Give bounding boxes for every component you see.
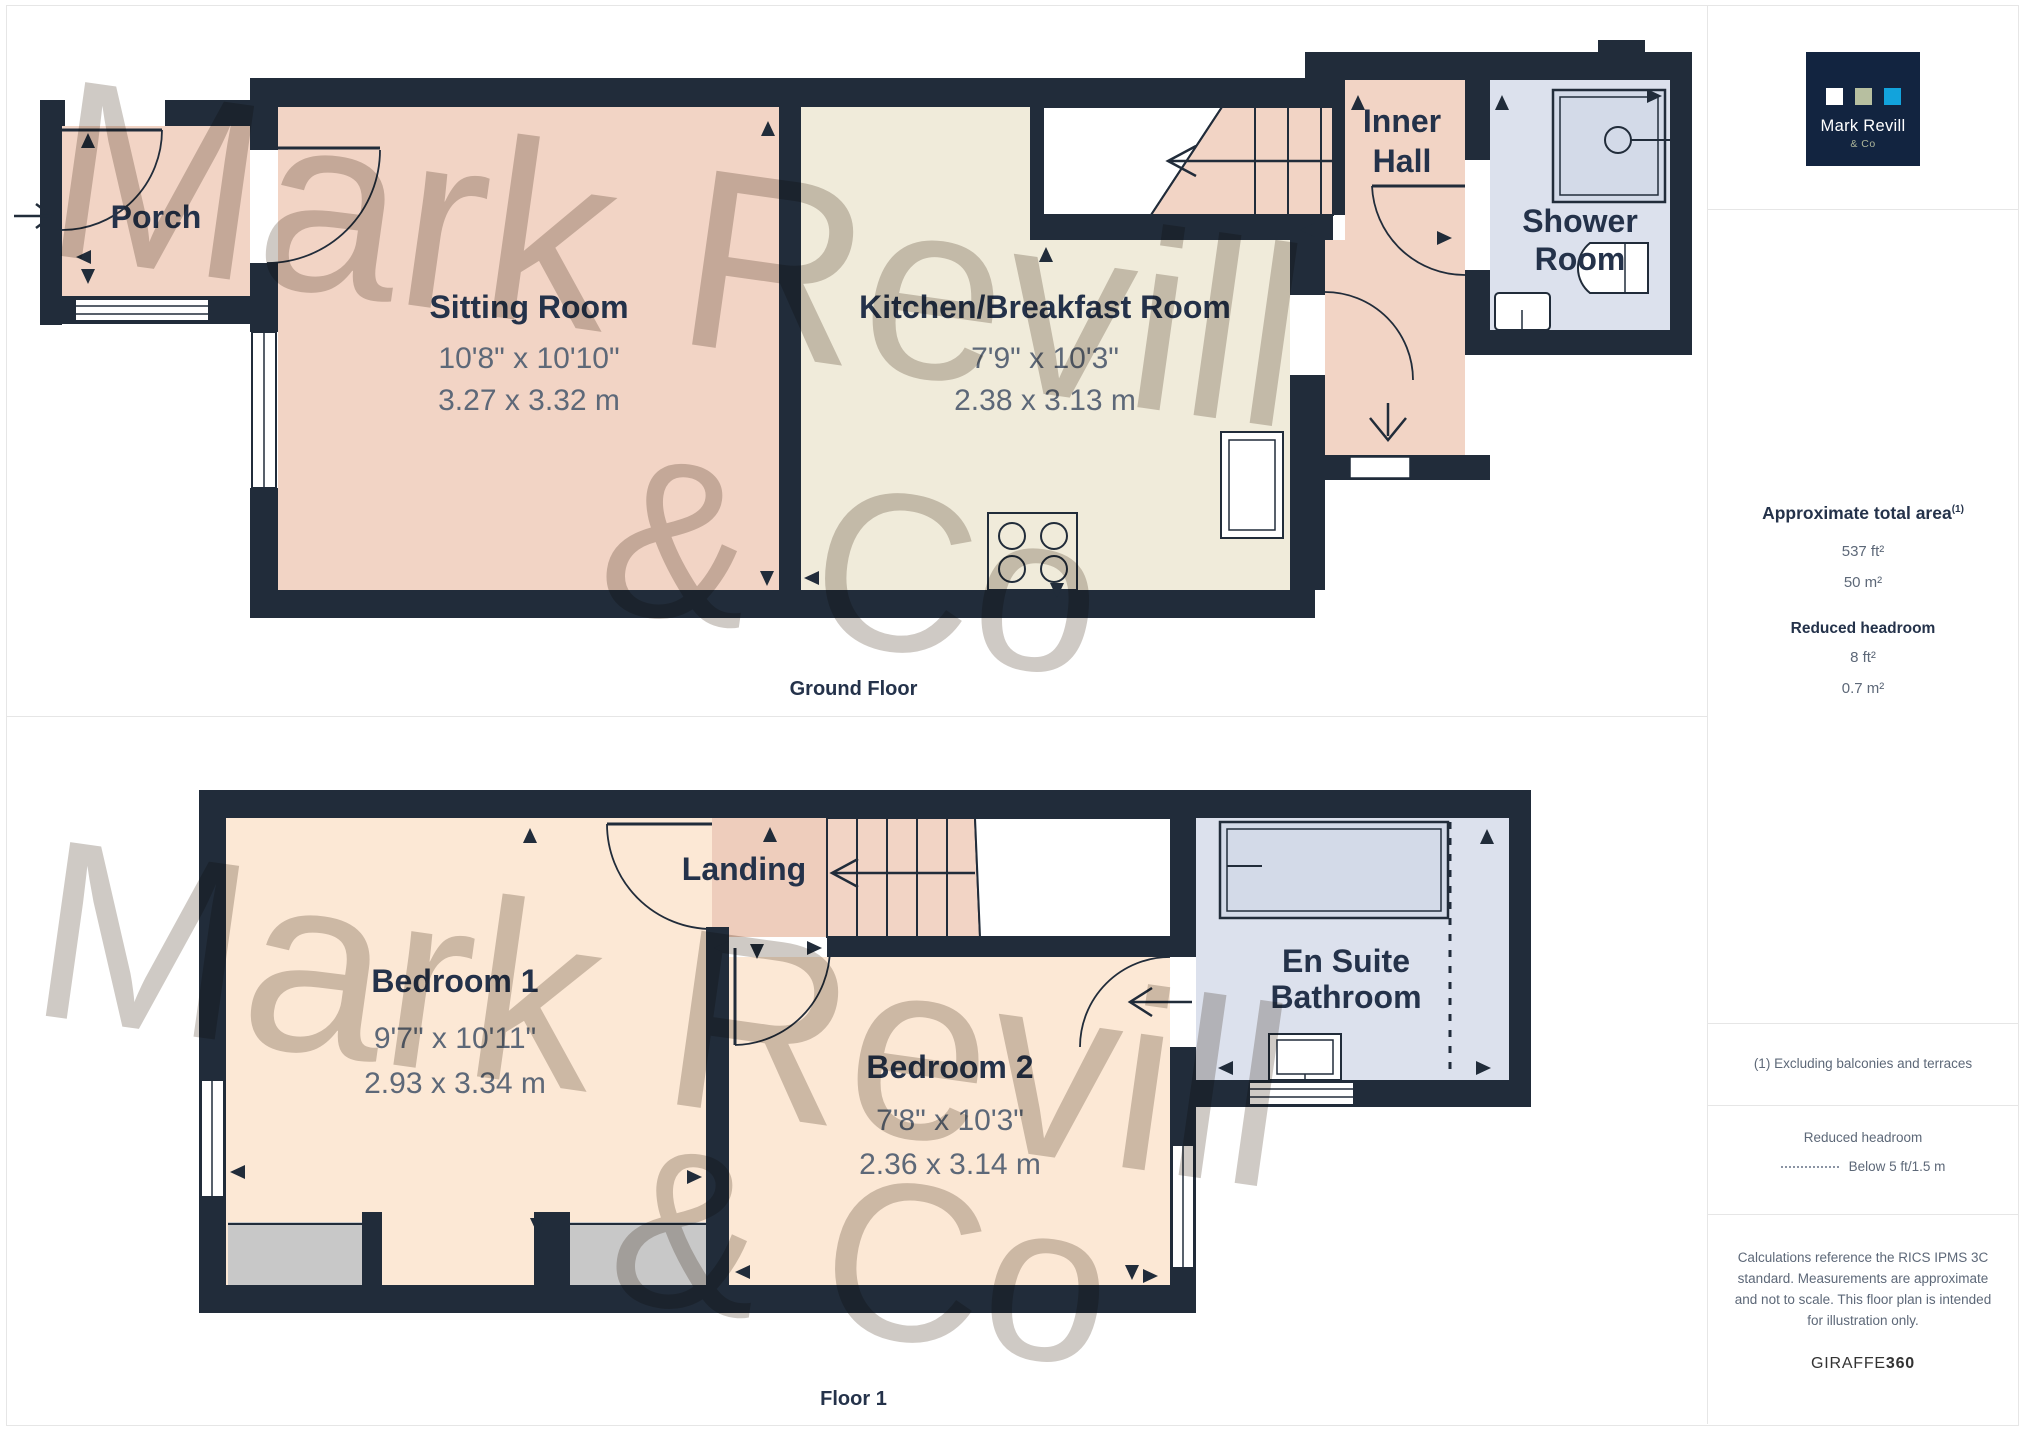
toilet-floor1-icon bbox=[1269, 1034, 1341, 1080]
plans-divider bbox=[7, 716, 1707, 717]
legend-title: Reduced headroom bbox=[1707, 1130, 2019, 1145]
ground-floor-caption: Ground Floor bbox=[0, 678, 1707, 701]
giraffe360-credit: GIRAFFE360 bbox=[1707, 1355, 2019, 1373]
area-value-m: 50 m² bbox=[1707, 567, 2019, 598]
logo-square-white-icon bbox=[1826, 88, 1843, 105]
reduced-headroom-title: Reduced headroom bbox=[1707, 620, 2019, 638]
reduced-value-ft: 8 ft² bbox=[1707, 642, 2019, 673]
agency-logo: Mark Revill & Co bbox=[1806, 52, 1920, 166]
area-value-ft: 537 ft² bbox=[1707, 536, 2019, 567]
credit-brand: GIRAFFE bbox=[1811, 1355, 1886, 1372]
area-summary: Approximate total area(1) 537 ft² 50 m² … bbox=[1707, 503, 2019, 704]
window-ensuite bbox=[1249, 1082, 1354, 1105]
dim-bedroom1-metric: 2.93 x 3.34 m bbox=[364, 1067, 546, 1100]
disclaimer-text: Calculations reference the RICS IPMS 3C … bbox=[1732, 1247, 1994, 1331]
dim-bedroom1-imperial: 9'7" x 10'11" bbox=[374, 1022, 536, 1055]
window-bedroom2 bbox=[1172, 1145, 1194, 1268]
disclaimer-section: Calculations reference the RICS IPMS 3C … bbox=[1707, 1247, 2019, 1373]
legend: Reduced headroom Below 5 ft/1.5 m bbox=[1707, 1130, 2019, 1174]
label-bedroom1: Bedroom 1 bbox=[371, 963, 538, 999]
sidebar-section-line-3 bbox=[1707, 1105, 2018, 1106]
credit-suffix: 360 bbox=[1886, 1355, 1915, 1372]
window-bedroom1 bbox=[201, 1080, 224, 1197]
alcove-left bbox=[228, 1222, 362, 1285]
logo-square-sage-icon bbox=[1855, 88, 1872, 105]
footnote: (1) Excluding balconies and terraces bbox=[1707, 1056, 2019, 1071]
dim-bedroom2-metric: 2.36 x 3.14 m bbox=[859, 1148, 1041, 1181]
alcove-right bbox=[570, 1222, 706, 1285]
bathtub-icon bbox=[1220, 822, 1448, 918]
area-title: Approximate total area(1) bbox=[1707, 503, 2019, 524]
dotted-line-icon bbox=[1781, 1166, 1839, 1168]
floor1-caption: Floor 1 bbox=[0, 1388, 1707, 1411]
label-bedroom2: Bedroom 2 bbox=[866, 1049, 1033, 1085]
sidebar-section-line-4 bbox=[1707, 1214, 2018, 1215]
area-title-superscript: (1) bbox=[1952, 504, 1964, 515]
sidebar-divider bbox=[1707, 5, 1708, 1424]
reduced-value-m: 0.7 m² bbox=[1707, 673, 2019, 704]
logo-subname: & Co bbox=[1806, 138, 1920, 150]
label-ensuite-2: Bathroom bbox=[1270, 979, 1421, 1015]
area-title-text: Approximate total area bbox=[1762, 503, 1952, 523]
legend-label: Below 5 ft/1.5 m bbox=[1849, 1159, 1946, 1174]
plan-area: Porch Sitting Room 10'8" x 10'10" 3.27 x… bbox=[0, 0, 1707, 1424]
floor1-plan: Landing Bedroom 1 9'7" x 10'11" 2.93 x 3… bbox=[0, 0, 1707, 1424]
logo-name: Mark Revill bbox=[1806, 117, 1920, 136]
stairs-floor1 bbox=[827, 818, 1171, 937]
label-ensuite-1: En Suite bbox=[1282, 943, 1410, 979]
dim-bedroom2-imperial: 7'8" x 10'3" bbox=[876, 1104, 1024, 1137]
sidebar-section-line-2 bbox=[1707, 1023, 2018, 1024]
label-landing: Landing bbox=[682, 851, 806, 887]
logo-square-blue-icon bbox=[1884, 88, 1901, 105]
floorplan-page: Porch Sitting Room 10'8" x 10'10" 3.27 x… bbox=[0, 0, 2025, 1433]
sidebar-section-line-1 bbox=[1707, 209, 2018, 210]
